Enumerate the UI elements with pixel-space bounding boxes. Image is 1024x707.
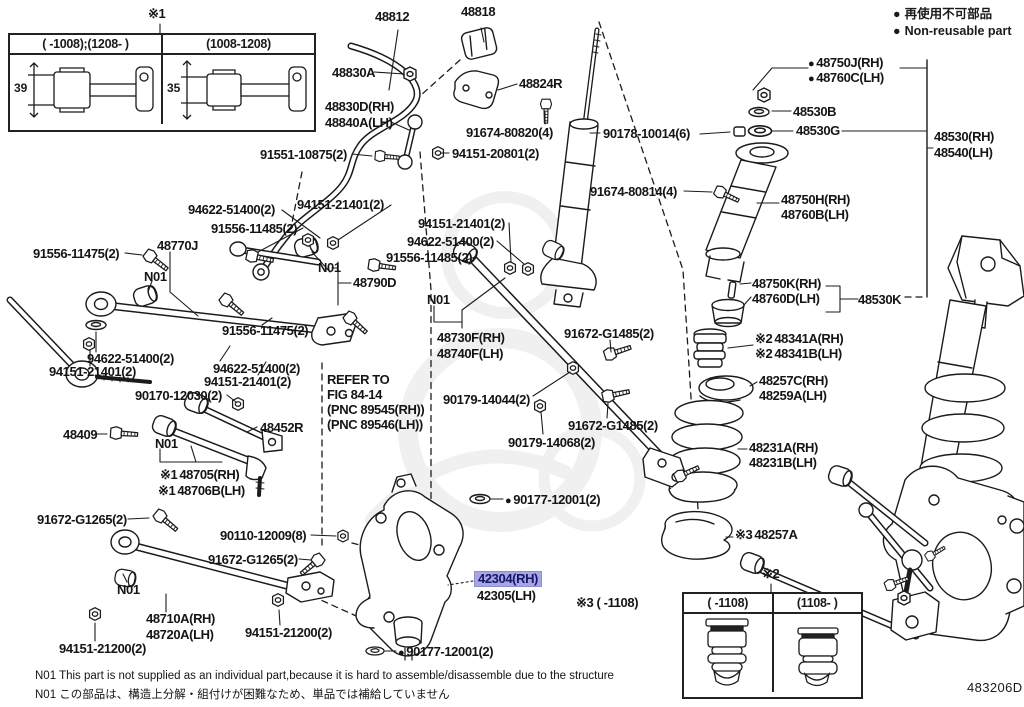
- part-label-91674-80820[interactable]: 91674-80820(4): [466, 126, 553, 140]
- note-ref-N01-c: N01: [427, 293, 450, 307]
- refer-note-line2: FIG 84-14: [327, 388, 382, 402]
- non-reusable-dot: ●: [808, 58, 814, 70]
- legend-en: Non-reusable part: [905, 23, 1012, 40]
- part-label-48730F[interactable]: 48730F(RH): [437, 331, 505, 345]
- stabilizer-bracket: [454, 71, 499, 108]
- part-label-94151-21401-a[interactable]: 94151-21401(2): [297, 198, 384, 212]
- non-reusable-dot: ●: [398, 647, 404, 659]
- part-label-91674-80814[interactable]: 91674-80814(4): [590, 185, 677, 199]
- part-label-48705[interactable]: ※148705(RH): [160, 468, 239, 482]
- bump-stop-drawing-late: [774, 614, 860, 692]
- part-label-48409[interactable]: 48409: [63, 428, 97, 442]
- non-reusable-dot: ●: [893, 23, 901, 40]
- part-label-48750H[interactable]: 48750H(RH): [781, 193, 850, 207]
- part-label-91556-11485-b[interactable]: 91556-11485(2): [386, 251, 472, 265]
- part-label-94622-51400-a[interactable]: 94622-51400(2): [188, 203, 275, 217]
- part-label-94151-21200-a[interactable]: 94151-21200(2): [59, 642, 146, 656]
- legend-jp: 再使用不可部品: [905, 6, 993, 23]
- part-label-42304-selected[interactable]: 42304(RH): [474, 571, 542, 587]
- part-label-90178-10014[interactable]: 90178-10014(6): [603, 127, 690, 141]
- shock-absorber: [541, 30, 601, 307]
- variant-table-2-col1-header: ( -1108): [684, 594, 772, 612]
- part-label-91672-G1485-b[interactable]: 91672-G1485(2): [568, 419, 658, 433]
- bump-stop: [694, 329, 726, 367]
- variant-table-1-col1-header: ( -1008);(1208- ): [10, 35, 161, 53]
- part-label-48341B[interactable]: ※248341B(LH): [755, 347, 842, 361]
- part-label-48530[interactable]: 48530(RH): [934, 130, 994, 144]
- dimension-value-39: 39: [14, 81, 27, 95]
- part-label-94622-51400-b[interactable]: 94622-51400(2): [407, 235, 494, 249]
- figure-code: 483206D: [967, 680, 1023, 695]
- part-label-48770J[interactable]: 48770J: [157, 239, 198, 253]
- parts-diagram-page: ※1 48812 48818 48830A 48824R 48830D(RH) …: [0, 0, 1024, 707]
- refer-note-line4: (PNC 89546(LH)): [327, 418, 423, 432]
- part-label-48750J[interactable]: ●48750J(RH): [808, 56, 883, 71]
- part-label-48790D[interactable]: 48790D: [353, 276, 396, 290]
- coil-spring: [669, 401, 743, 503]
- part-label-48341A[interactable]: ※248341A(RH): [755, 332, 843, 346]
- part-label-90110-12009[interactable]: 90110-12009(8): [220, 529, 306, 543]
- part-label-48760D[interactable]: 48760D(LH): [752, 292, 820, 306]
- note-ref-N01-a: N01: [144, 270, 167, 284]
- stabilizer-link: [398, 115, 422, 169]
- variant-table-1-cell1: 39: [10, 55, 161, 124]
- part-label-48710A[interactable]: 48710A(RH): [146, 612, 215, 626]
- part-label-48760B[interactable]: 48760B(LH): [781, 208, 849, 222]
- part-label-91556-11475-a[interactable]: 91556-11475(2): [33, 247, 119, 261]
- refer-note-line3: (PNC 89545(RH)): [327, 403, 424, 417]
- variant-table-1-cell2: 35: [161, 55, 314, 124]
- part-label-42305[interactable]: 42305(LH): [477, 589, 536, 603]
- part-label-48231A[interactable]: 48231A(RH): [749, 441, 818, 455]
- part-label-91672-G1265-a[interactable]: 91672-G1265(2): [37, 513, 127, 527]
- note-ref-N01-e: N01: [117, 583, 140, 597]
- part-label-91672-G1485-a[interactable]: 91672-G1485(2): [564, 327, 654, 341]
- part-label-90179-14068[interactable]: 90179-14068(2): [508, 436, 595, 450]
- legend: ●再使用不可部品 ●Non-reusable part: [893, 6, 1012, 40]
- part-label-48720A[interactable]: 48720A(LH): [146, 628, 214, 642]
- part-label-48830A[interactable]: 48830A: [332, 66, 375, 80]
- variant-table-2-cell1: [684, 614, 772, 692]
- part-label-48824R[interactable]: 48824R: [519, 77, 562, 91]
- part-label-91556-11485-a[interactable]: 91556-11485(2): [211, 222, 297, 236]
- part-label-91556-11475-b[interactable]: 91556-11475(2): [222, 324, 308, 338]
- part-label-48259A[interactable]: 48259A(LH): [759, 389, 827, 403]
- part-label-90177-12001-b[interactable]: ●90177-12001(2): [398, 645, 493, 660]
- spring-upper-insulator: [699, 376, 753, 402]
- part-label-94151-21200-b[interactable]: 94151-21200(2): [245, 626, 332, 640]
- bushing-arm-drawing-39: [10, 55, 160, 124]
- part-label-90170-12030[interactable]: 90170-12030(2): [135, 389, 222, 403]
- part-label-91551-10875[interactable]: 91551-10875(2): [260, 148, 347, 162]
- part-label-48706B[interactable]: ※148706B(LH): [158, 484, 245, 498]
- refer-note-line1: REFER TO: [327, 373, 389, 387]
- non-reusable-dot: ●: [893, 6, 901, 23]
- part-label-48257C[interactable]: 48257C(RH): [759, 374, 828, 388]
- part-label-48530G[interactable]: 48530G: [796, 124, 840, 138]
- upper-control-arm-48770J: [86, 284, 356, 345]
- part-label-48231B[interactable]: 48231B(LH): [749, 456, 817, 470]
- part-label-48452R[interactable]: 48452R: [260, 421, 303, 435]
- stabilizer-bushing: [460, 27, 498, 61]
- marker-1: ※1: [148, 7, 165, 21]
- part-label-48540[interactable]: 48540(LH): [934, 146, 993, 160]
- non-reusable-dot: ●: [505, 495, 511, 507]
- marker-3-range-note: ※3 ( -1108): [576, 596, 638, 610]
- non-reusable-dot: ●: [808, 73, 814, 85]
- marker-2: ※2: [762, 567, 779, 581]
- variant-table-2: ( -1108) (1108- ): [682, 592, 863, 699]
- part-label-48740F[interactable]: 48740F(LH): [437, 347, 503, 361]
- part-label-48812[interactable]: 48812: [375, 10, 409, 24]
- footnote-en: N01 This part is not supplied as an indi…: [35, 670, 614, 682]
- note-ref-N01-b: N01: [318, 261, 341, 275]
- spring-lower-insulator: [662, 512, 732, 560]
- part-label-48530K[interactable]: 48530K: [858, 293, 901, 307]
- part-label-94151-21401-c[interactable]: 94151-21401(2): [49, 365, 136, 379]
- part-label-48750K[interactable]: 48750K(RH): [752, 277, 821, 291]
- variant-table-1: ( -1008);(1208- ) (1008-1208) 39 35: [8, 33, 316, 132]
- variant-table-2-cell2: [772, 614, 862, 692]
- part-label-48830D[interactable]: 48830D(RH): [325, 100, 394, 114]
- note-ref-N01-d: N01: [155, 437, 178, 451]
- part-label-91672-G1265-b[interactable]: 91672-G1265(2): [208, 553, 298, 567]
- part-label-94151-20801[interactable]: 94151-20801(2): [452, 147, 539, 161]
- part-label-94151-21401-b[interactable]: 94151-21401(2): [418, 217, 505, 231]
- part-label-94151-21401-d[interactable]: 94151-21401(2): [204, 375, 291, 389]
- part-label-48818[interactable]: 48818: [461, 5, 495, 19]
- part-label-90177-12001-a[interactable]: ●90177-12001(2): [505, 493, 600, 508]
- part-label-48760C[interactable]: ●48760C(LH): [808, 71, 884, 86]
- bushing-arm-drawing-35: [163, 55, 313, 124]
- part-label-48257A[interactable]: ※348257A: [735, 528, 797, 542]
- part-label-48840A[interactable]: 48840A(LH): [325, 116, 393, 130]
- footnote-jp: N01 この部品は、構造上分解・組付けが困難なため、単品では補給していません: [35, 686, 450, 702]
- variant-table-1-col2-header: (1008-1208): [161, 35, 314, 53]
- dimension-value-35: 35: [167, 81, 180, 95]
- part-label-90179-14044[interactable]: 90179-14044(2): [443, 393, 530, 407]
- variant-table-2-col2-header: (1108- ): [772, 594, 862, 612]
- bump-stop-drawing-early: [684, 614, 770, 692]
- part-label-48530B[interactable]: 48530B: [793, 105, 836, 119]
